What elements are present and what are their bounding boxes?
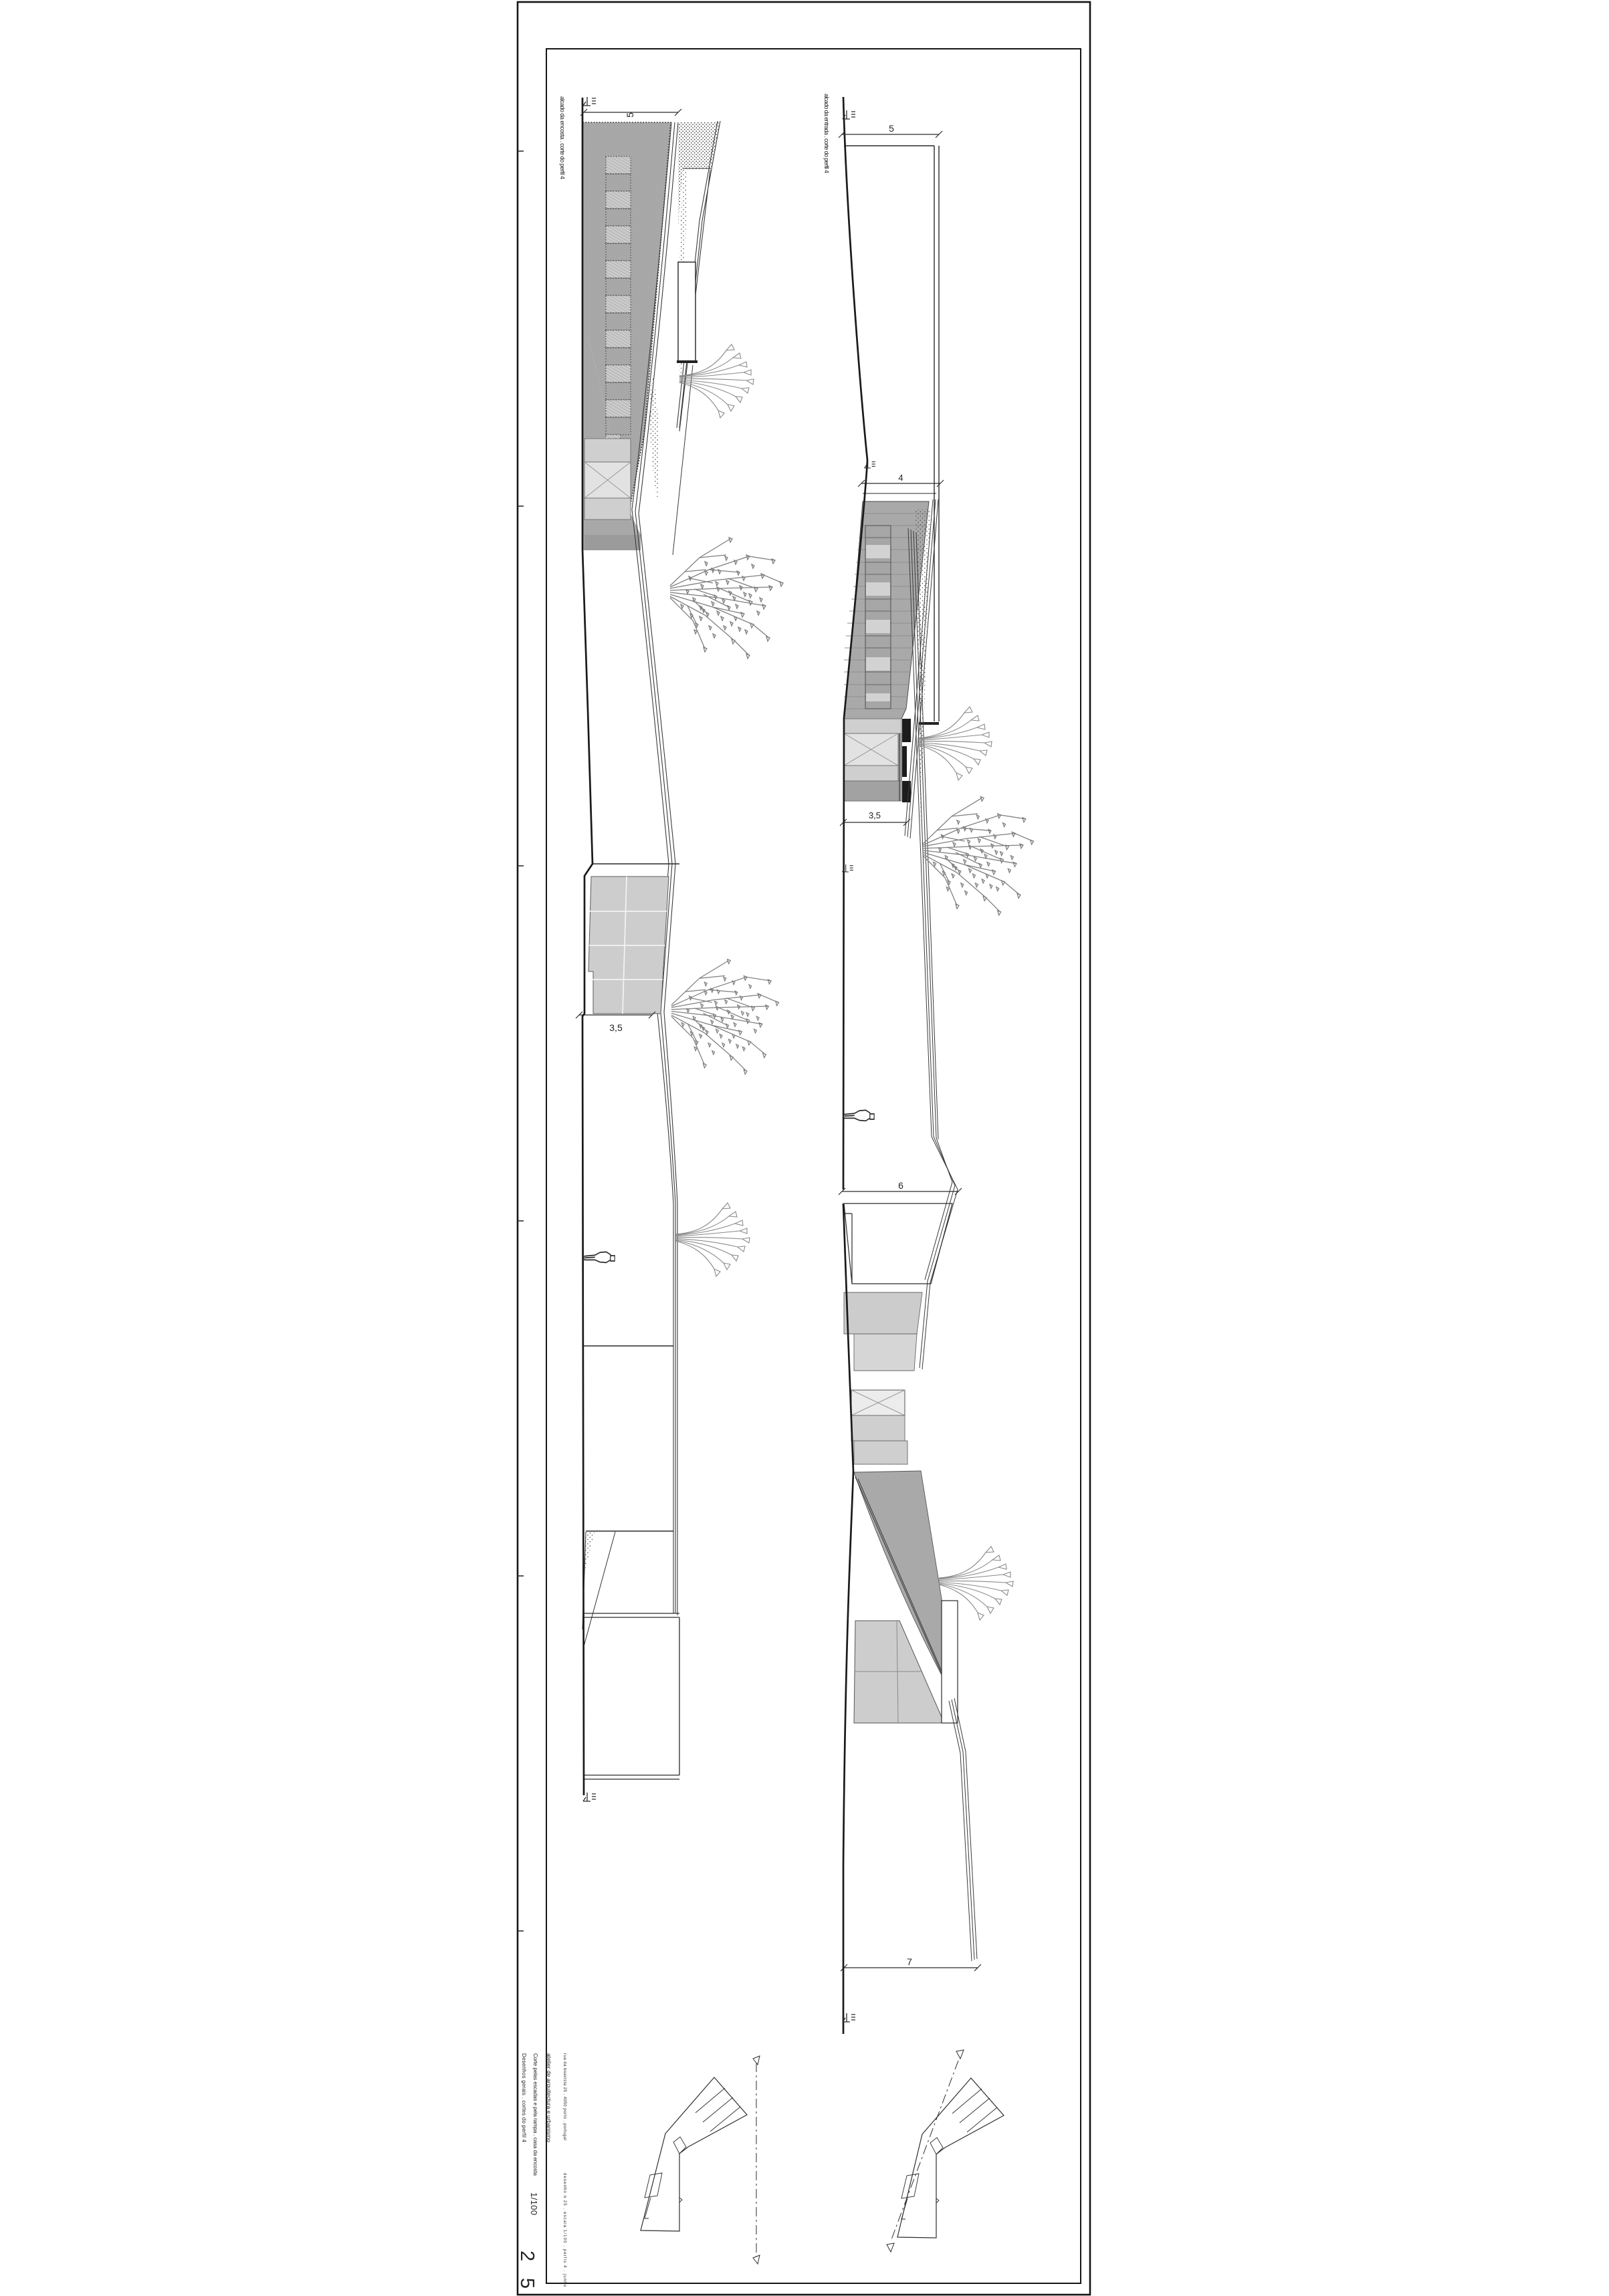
svg-text:atelier de arquitectura e urba: atelier de arquitectura e urbanismo — [546, 2053, 552, 2142]
svg-text:Desenhos gerais . cortes do pe: Desenhos gerais . cortes do perfil 4 — [521, 2053, 527, 2143]
svg-text:6: 6 — [898, 1180, 903, 1191]
svg-text:rua da boavista 25 . 4050 port: rua da boavista 25 . 4050 porto . portug… — [562, 2053, 566, 2140]
svg-text:5: 5 — [889, 123, 894, 134]
svg-text:desenho n 25 . escala 1/100 .: desenho n 25 . escala 1/100 . perfis 4 .… — [562, 2173, 566, 2287]
svg-text:1/100: 1/100 — [529, 2192, 539, 2215]
svg-text:7: 7 — [907, 1956, 912, 1967]
svg-text:Corte pelas escadas e pela ram: Corte pelas escadas e pela rampa . casa … — [532, 2053, 538, 2176]
svg-text:alcado da entrada . corte do: alcado da entrada . corte do perfil 4 — [823, 94, 830, 173]
svg-text:4: 4 — [898, 473, 903, 483]
svg-text:5: 5 — [625, 112, 635, 118]
svg-text:3,5: 3,5 — [869, 810, 881, 820]
svg-text:alcado da encosta . corte do: alcado da encosta . corte do perfil 4 — [559, 96, 566, 179]
svg-text:3,5: 3,5 — [609, 1022, 623, 1033]
